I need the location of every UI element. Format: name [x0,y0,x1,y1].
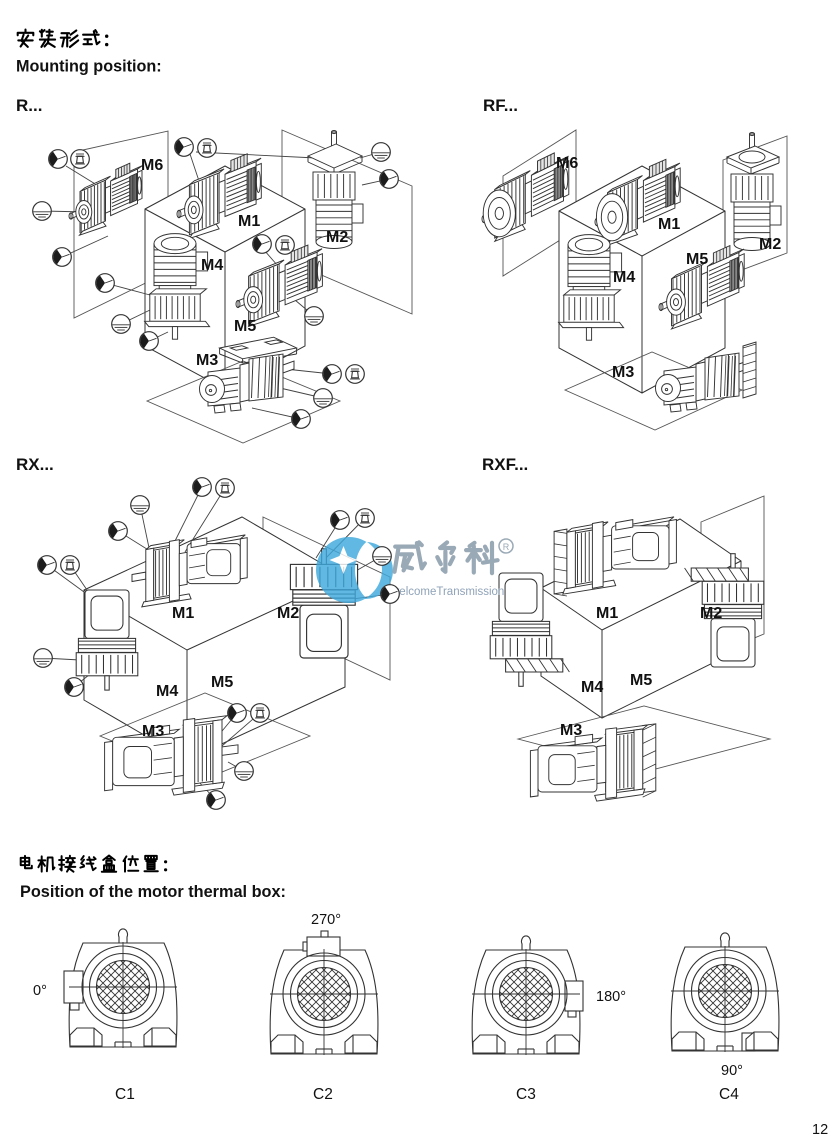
svg-text:M3: M3 [142,723,164,740]
svg-text:R...: R... [16,96,42,115]
svg-text:M2: M2 [700,605,722,622]
svg-text:C1: C1 [115,1086,135,1103]
svg-text:M3: M3 [196,352,218,369]
svg-text:C2: C2 [313,1086,333,1103]
svg-text:M3: M3 [560,722,582,739]
svg-text:M5: M5 [686,251,708,268]
svg-text:12: 12 [812,1122,828,1138]
svg-text:M5: M5 [630,672,652,689]
svg-text:M4: M4 [201,257,223,274]
svg-text:M5: M5 [234,318,256,335]
svg-text:M2: M2 [326,229,348,246]
svg-text:M4: M4 [156,683,178,700]
svg-text:RF...: RF... [483,96,518,115]
svg-text:90°: 90° [721,1063,743,1079]
svg-text:M2: M2 [277,605,299,622]
svg-text:0°: 0° [33,983,47,999]
svg-text:M4: M4 [613,269,635,286]
svg-text:C3: C3 [516,1086,536,1103]
svg-text:M6: M6 [141,157,163,174]
svg-text:M4: M4 [581,679,603,696]
svg-text:M6: M6 [556,155,578,172]
svg-text:M2: M2 [759,236,781,253]
svg-text:C4: C4 [719,1086,739,1103]
svg-text:M5: M5 [211,674,233,691]
svg-text:M1: M1 [596,605,618,622]
svg-text:Position of the motor thermal: Position of the motor thermal box: [20,883,286,901]
svg-text:R: R [503,542,510,552]
svg-text:M1: M1 [172,605,194,622]
svg-text:M3: M3 [612,364,634,381]
svg-text:M1: M1 [238,213,260,230]
svg-text:welcomeTransmission: welcomeTransmission [390,586,504,598]
svg-text:270°: 270° [311,912,341,928]
svg-text:M1: M1 [658,216,680,233]
svg-text:Mounting position:: Mounting position: [16,58,162,76]
svg-text:RXF...: RXF... [482,455,528,474]
svg-text:180°: 180° [596,989,626,1005]
svg-text:RX...: RX... [16,455,54,474]
